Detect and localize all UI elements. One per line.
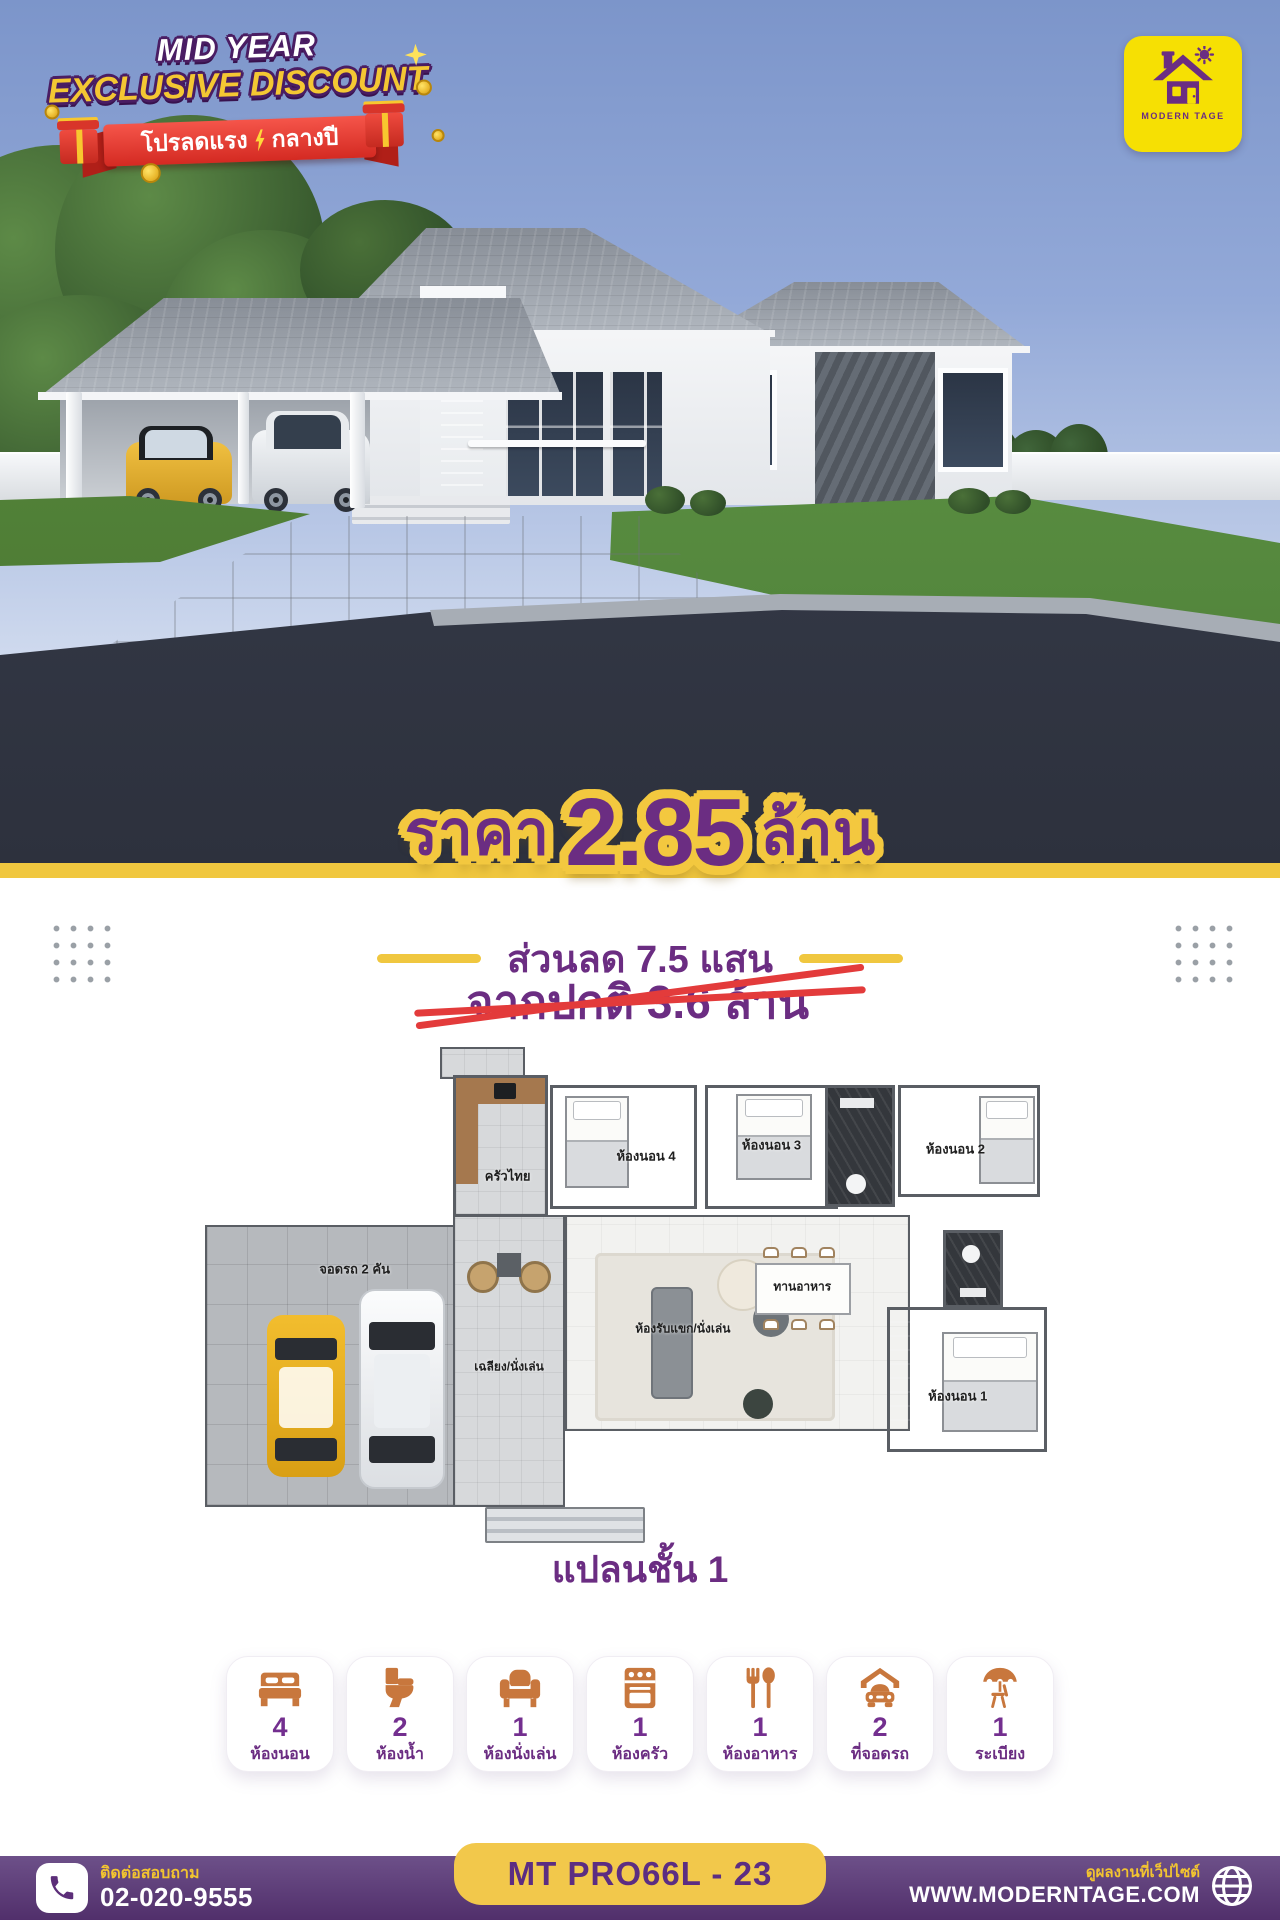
plan-entrance-steps — [485, 1507, 645, 1543]
feature-count: 1 — [752, 1713, 767, 1741]
toilet-icon — [376, 1665, 424, 1711]
phone-contact[interactable]: ติดต่อสอบถาม 02-020-9555 — [36, 1863, 253, 1913]
feature-count: 2 — [872, 1713, 887, 1741]
sink-fixture — [960, 1288, 986, 1297]
room-label: ห้องนอน 3 — [742, 1134, 801, 1155]
dining-chair — [763, 1247, 779, 1258]
bed — [979, 1096, 1035, 1184]
feature-label: ห้องนอน — [250, 1742, 309, 1767]
plan-living-dining: ห้องรับแขก/นั่งเล่น ทานอาหาร — [565, 1215, 910, 1431]
plan-kitchen: ครัวไทย — [453, 1075, 548, 1217]
coin-icon — [44, 104, 60, 120]
contact-label: ติดต่อสอบถาม — [100, 1865, 253, 1883]
plan-yellow-car — [267, 1315, 345, 1477]
feature-card-bedrooms: 4 ห้องนอน — [226, 1656, 334, 1772]
feature-label: ห้องน้ำ — [376, 1742, 424, 1767]
website-url: WWW.MODERNTAGE.COM — [909, 1882, 1200, 1908]
shrub — [995, 490, 1031, 514]
ribbon-text-left: โปรลดแรง — [140, 123, 248, 163]
website-label: ดูผลงานที่เว็ปไซต์ — [909, 1864, 1200, 1882]
accent-bar-left — [377, 954, 481, 963]
feature-card-living: 1 ห้องนั่งเล่น — [466, 1656, 574, 1772]
plan-white-car — [359, 1289, 445, 1489]
plan-bedroom-2: ห้องนอน 2 — [898, 1085, 1040, 1197]
promo-poster: MID YEAR EXCLUSIVE DISCOUNT โปรลดแรง กลา… — [0, 0, 1280, 1920]
stove-icon — [616, 1665, 664, 1711]
plan-porch: เฉลียง/นั่งเล่น — [453, 1215, 565, 1507]
globe-icon — [1210, 1864, 1254, 1908]
umbrella-chair-icon — [976, 1665, 1024, 1711]
lightning-icon — [252, 129, 267, 151]
roof-fascia — [38, 392, 562, 400]
modern-tage-logo: MODERN TAGE — [1124, 36, 1242, 152]
plan-title: แปลนชั้น 1 — [0, 1540, 1280, 1599]
room-label: ห้องนอน 4 — [616, 1146, 675, 1167]
stone-accent-wall — [815, 352, 935, 505]
bed — [942, 1332, 1038, 1432]
yellow-car — [126, 442, 232, 504]
carport-post — [238, 392, 249, 504]
feature-card-parking: 2 ที่จอดรถ — [826, 1656, 934, 1772]
patio-chair — [467, 1261, 499, 1293]
toilet-fixture — [846, 1174, 866, 1194]
plant — [743, 1389, 773, 1419]
coin-icon — [140, 163, 161, 184]
shrub — [690, 490, 726, 516]
sink-fixture — [840, 1098, 874, 1108]
model-code-badge: MT PRO66L - 23 — [454, 1843, 826, 1905]
porch-railing — [468, 440, 646, 447]
plan-bathroom-1 — [825, 1085, 895, 1207]
feature-count: 4 — [272, 1713, 287, 1741]
dining-chair — [819, 1247, 835, 1258]
house-logo-icon — [1147, 46, 1219, 108]
stove-top — [494, 1083, 516, 1099]
feature-row: 4 ห้องนอน 2 ห้องน้ำ 1 ห้องนั่งเล่น — [0, 1656, 1280, 1772]
midyear-badge: MID YEAR EXCLUSIVE DISCOUNT โปรลดแรง กลา… — [15, 0, 461, 185]
carport-icon — [856, 1665, 904, 1711]
shrub — [948, 488, 990, 514]
bed — [565, 1096, 629, 1188]
shrub — [645, 486, 685, 514]
window — [610, 372, 662, 496]
price-unit: ล้าน — [760, 784, 875, 882]
feature-label: ระเบียง — [975, 1742, 1025, 1767]
toilet-fixture — [962, 1245, 980, 1263]
original-price-line: จากปกติ 3.6 ล้าน — [0, 966, 1280, 1039]
price-headline: ราคา 2.85 ล้าน — [0, 778, 1280, 888]
accent-bar-right — [799, 954, 903, 963]
feature-card-dining: 1 ห้องอาหาร — [706, 1656, 814, 1772]
room-label: ห้องรับแขก/นั่งเล่น — [635, 1320, 730, 1339]
room-label: ห้องนอน 1 — [928, 1386, 987, 1407]
dining-chair — [763, 1319, 779, 1330]
feature-count: 1 — [512, 1713, 527, 1741]
kitchen-counter — [456, 1104, 478, 1184]
coin-icon — [431, 129, 444, 142]
feature-card-bathrooms: 2 ห้องน้ำ — [346, 1656, 454, 1772]
gift-icon — [59, 129, 98, 164]
feature-count: 2 — [392, 1713, 407, 1741]
price-amount: 2.85 — [565, 778, 744, 888]
armchair-icon — [496, 1665, 544, 1711]
bed-icon — [256, 1665, 304, 1711]
patio-table — [497, 1253, 521, 1277]
feature-label: ห้องนั่งเล่น — [484, 1742, 557, 1767]
phone-icon — [47, 1873, 77, 1903]
dining-chair — [791, 1247, 807, 1258]
feature-count: 1 — [632, 1713, 647, 1741]
ribbon-text-right: กลางปี — [271, 120, 339, 158]
room-label: ครัวไทย — [485, 1165, 531, 1186]
plan-bedroom-1: ห้องนอน 1 — [887, 1307, 1047, 1452]
feature-card-kitchen: 1 ห้องครัว — [586, 1656, 694, 1772]
gift-icon — [365, 112, 404, 147]
carport-post — [66, 392, 82, 508]
phone-number: 02-020-9555 — [100, 1883, 253, 1912]
plan-bedroom-3: ห้องนอน 3 — [705, 1085, 838, 1209]
cutlery-icon — [736, 1665, 784, 1711]
logo-wordmark: MODERN TAGE — [1141, 111, 1224, 121]
website-link[interactable]: ดูผลงานที่เว็ปไซต์ WWW.MODERNTAGE.COM — [909, 1864, 1254, 1908]
price-prefix: ราคา — [405, 784, 549, 882]
feature-label: ห้องครัว — [612, 1742, 668, 1767]
carport-post — [350, 392, 365, 508]
sofa — [651, 1287, 693, 1399]
room-label: ห้องนอน 2 — [926, 1139, 985, 1160]
feature-count: 1 — [992, 1713, 1007, 1741]
dining-chair — [819, 1319, 835, 1330]
feature-label: ที่จอดรถ — [851, 1742, 909, 1767]
patio-chair — [519, 1261, 551, 1293]
room-label: เฉลียง/นั่งเล่น — [474, 1357, 544, 1376]
room-label: จอดรถ 2 คัน — [319, 1258, 390, 1279]
house-photo: MID YEAR EXCLUSIVE DISCOUNT โปรลดแรง กลา… — [0, 0, 1280, 863]
plan-bedroom-4: ห้องนอน 4 — [550, 1085, 697, 1209]
original-price-text: จากปกติ 3.6 ล้าน — [457, 966, 820, 1039]
dining-chair — [791, 1319, 807, 1330]
badge-ribbon: โปรลดแรง กลางปี — [103, 115, 376, 166]
plan-garage: จอดรถ 2 คัน — [205, 1225, 455, 1507]
phone-button[interactable] — [36, 1863, 88, 1913]
room-label: ทานอาหาร — [773, 1277, 831, 1296]
plan-bathroom-2 — [943, 1230, 1003, 1308]
floor-plan: ครัวไทย ห้องนอน 4 ห้องนอน 3 ห้องนอน 2 — [190, 1045, 1100, 1515]
window — [938, 368, 1008, 472]
feature-label: ห้องอาหาร — [723, 1742, 798, 1767]
feature-card-balcony: 1 ระเบียง — [946, 1656, 1054, 1772]
